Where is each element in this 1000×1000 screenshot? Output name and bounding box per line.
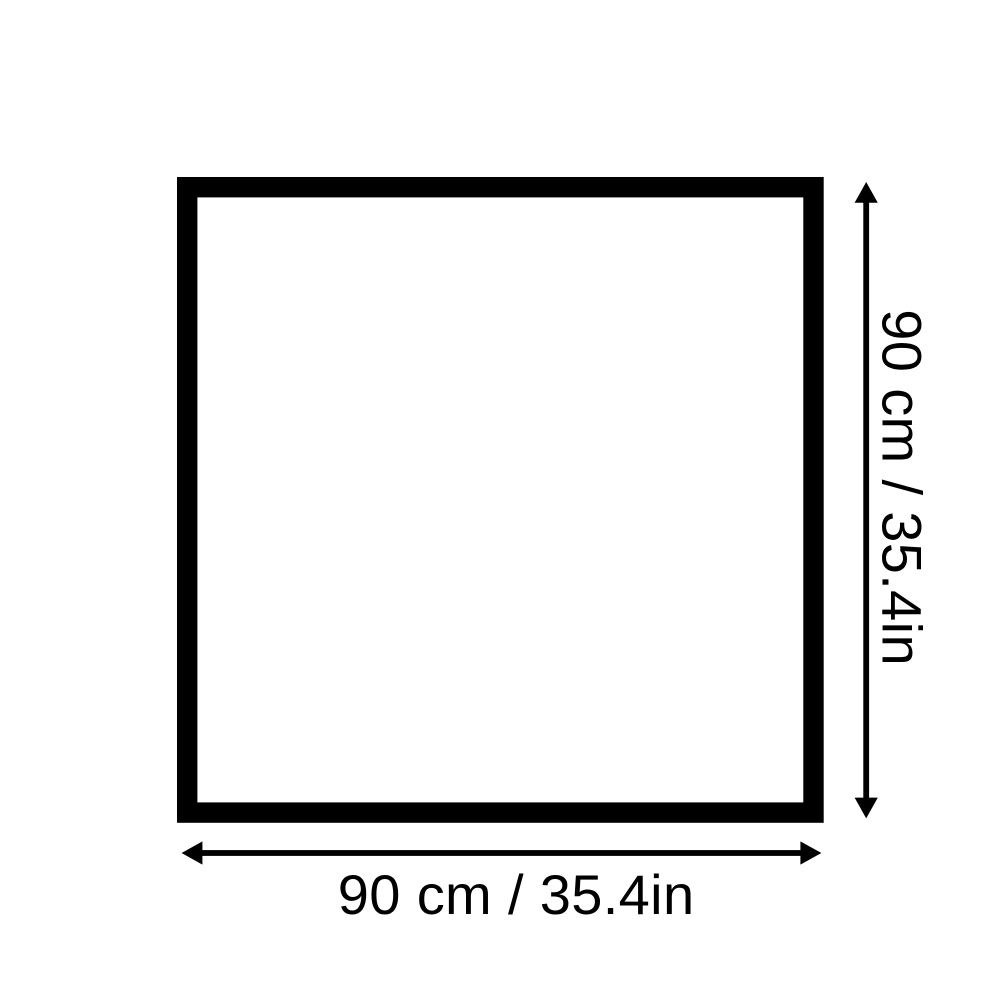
- svg-text:90 cm / 35.4in: 90 cm / 35.4in: [870, 309, 933, 666]
- svg-text:90 cm / 35.4in: 90 cm / 35.4in: [338, 863, 695, 926]
